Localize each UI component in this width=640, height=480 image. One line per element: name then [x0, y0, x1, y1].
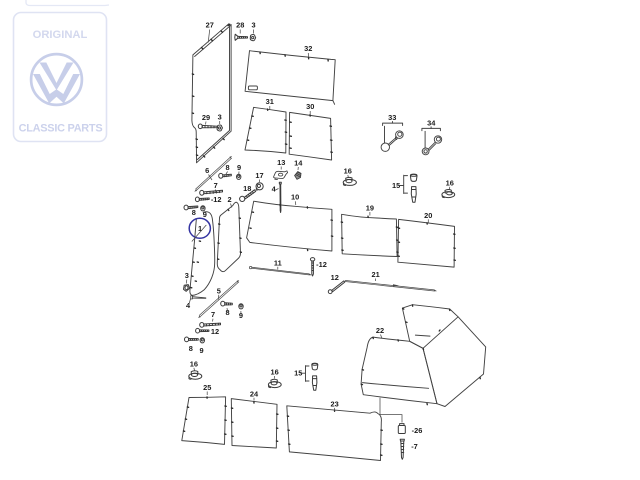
svg-text:CLASSIC PARTS: CLASSIC PARTS	[19, 123, 103, 135]
svg-text:21: 21	[371, 270, 379, 279]
svg-text:-7: -7	[411, 442, 418, 451]
svg-text:8: 8	[226, 163, 230, 172]
svg-text:25: 25	[203, 383, 211, 392]
svg-text:7: 7	[214, 181, 218, 190]
svg-text:33: 33	[388, 113, 396, 122]
svg-text:28: 28	[236, 21, 244, 30]
svg-text:8: 8	[189, 344, 193, 353]
svg-text:-26: -26	[412, 426, 423, 435]
svg-text:16: 16	[344, 167, 352, 176]
svg-text:14: 14	[294, 159, 303, 168]
svg-text:13: 13	[277, 158, 285, 167]
svg-text:16: 16	[190, 359, 198, 368]
svg-text:31: 31	[266, 97, 274, 106]
svg-text:17: 17	[255, 171, 263, 180]
svg-text:29: 29	[202, 113, 210, 122]
svg-text:3: 3	[185, 271, 189, 280]
svg-text:9: 9	[199, 346, 203, 355]
svg-text:16: 16	[446, 178, 454, 187]
svg-text:30: 30	[306, 102, 314, 111]
svg-text:12: 12	[331, 273, 339, 282]
svg-text:20: 20	[424, 211, 432, 220]
svg-text:-12: -12	[316, 260, 327, 269]
svg-text:6: 6	[205, 166, 209, 175]
svg-text:10: 10	[291, 193, 299, 202]
svg-text:7: 7	[211, 310, 215, 319]
svg-text:24: 24	[250, 389, 259, 398]
svg-text:8: 8	[192, 208, 196, 217]
svg-text:9: 9	[203, 210, 207, 219]
svg-text:ORIGINAL: ORIGINAL	[33, 29, 88, 41]
svg-text:22: 22	[376, 326, 384, 335]
svg-text:34: 34	[427, 118, 436, 127]
svg-text:19: 19	[366, 204, 374, 213]
svg-text:11: 11	[274, 258, 282, 267]
svg-text:9: 9	[237, 163, 241, 172]
svg-text:3: 3	[218, 113, 222, 122]
svg-text:18: 18	[243, 184, 251, 193]
svg-text:16: 16	[270, 368, 278, 377]
svg-text:23: 23	[330, 399, 338, 408]
svg-text:5: 5	[217, 286, 221, 295]
svg-text:12: 12	[211, 327, 219, 336]
svg-text:3: 3	[252, 21, 256, 30]
svg-text:32: 32	[304, 44, 312, 53]
svg-text:2: 2	[227, 195, 231, 204]
svg-text:27: 27	[206, 21, 214, 30]
svg-text:-12: -12	[211, 195, 222, 204]
